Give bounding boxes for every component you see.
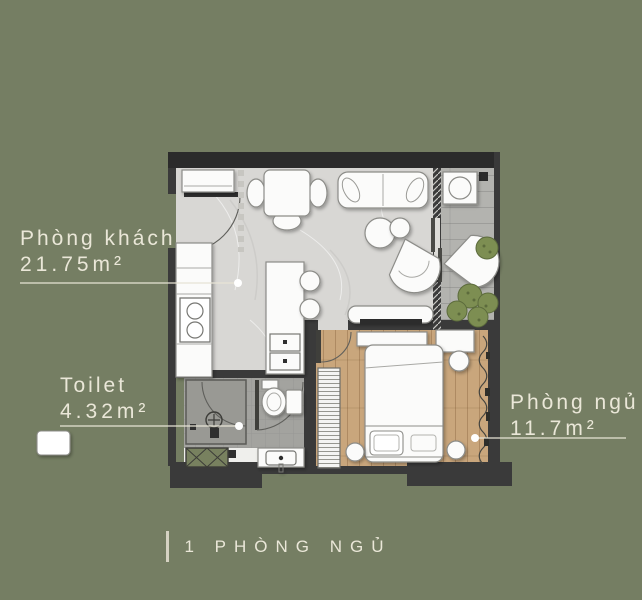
entry-cabinet: [182, 170, 234, 192]
living-room-label: Phòng khách 21.75m²: [20, 226, 176, 278]
tv: [360, 319, 422, 324]
toilet-floor-box: [228, 450, 236, 458]
plant-4: [447, 301, 467, 321]
coffee-table-large: [365, 218, 395, 248]
bedroom-right-wall: [488, 330, 500, 470]
plant-1: [476, 237, 498, 259]
bar-stool-2: [300, 299, 320, 319]
living-room-area: 21.75m²: [20, 252, 176, 278]
plant-5: [468, 307, 488, 327]
bedroom-name: Phòng ngủ: [510, 390, 639, 416]
divider-hatch-top: [433, 168, 441, 218]
wardrobe: [318, 368, 340, 468]
left-wall-upper: [168, 168, 176, 194]
sink-drain-2: [283, 359, 287, 363]
sliding-door-leaf-1: [431, 218, 435, 252]
left-wall-lower: [168, 248, 176, 466]
bedroom-dresser: [357, 332, 427, 346]
toilet-tank: [286, 390, 302, 414]
bedside-stool-right: [447, 441, 465, 459]
entrance-door-leaf: [184, 192, 240, 197]
bedroom-top-wall-left: [304, 320, 318, 330]
dining-chair-left: [247, 179, 265, 207]
shower-fixture: [210, 428, 219, 438]
coffee-table-small: [390, 218, 410, 238]
bar-stool-1: [300, 271, 320, 291]
floor-plan: [0, 0, 642, 600]
bedroom-leader-dot: [471, 434, 479, 442]
technical-shaft: [186, 448, 228, 467]
plan-title-block: 1 PHÒNG NGỦ: [166, 531, 392, 562]
desk-chair: [449, 351, 469, 371]
toilet-area: 4.32m²: [60, 399, 149, 425]
dining-table: [264, 170, 310, 216]
bedside-stool-left: [346, 443, 364, 461]
shower-control: [190, 424, 196, 430]
pillow-right: [37, 431, 70, 455]
floor-plan-page: Phòng khách 21.75m² Toilet 4.32m² Phòng …: [0, 0, 642, 600]
toilet-door-leaf: [255, 380, 259, 430]
sink-faucet-dot: [279, 456, 283, 460]
top-wall: [168, 152, 500, 168]
balcony-drain-box: [479, 172, 488, 181]
bedroom-label: Phòng ngủ 11.7m²: [510, 390, 639, 442]
plan-title: 1 PHÒNG NGỦ: [185, 537, 392, 557]
kitchen-island: [266, 262, 304, 374]
stove: [180, 298, 210, 342]
living-leader-dot: [234, 279, 242, 287]
dining-chair-right: [309, 179, 327, 207]
toilet-leader-dot: [235, 422, 243, 430]
toilet-name: Toilet: [60, 373, 149, 399]
bedroom-area: 11.7m²: [510, 416, 639, 442]
sink-drain-1: [283, 340, 287, 344]
bedroom-toilet-wall: [304, 320, 316, 470]
toilet-label: Toilet 4.32m²: [60, 373, 149, 425]
divider-hatch-bottom: [433, 280, 441, 330]
bedroom-door-leaf: [316, 330, 321, 363]
title-divider: [166, 531, 169, 562]
toilet-bowl: [262, 388, 286, 416]
living-room-name: Phòng khách: [20, 226, 176, 252]
